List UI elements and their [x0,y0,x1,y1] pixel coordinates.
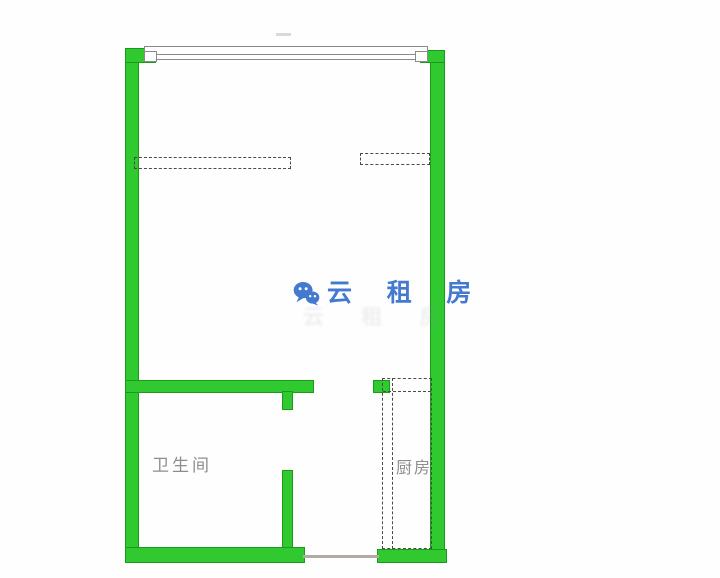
kitchen-label: 厨房 [396,454,432,478]
wall-left [125,49,139,563]
wall-bathroom-right [282,470,293,556]
wall-bottom-left [125,547,305,563]
watermark: 云 租 房 [293,273,484,309]
wall-bottom-right [377,549,447,563]
window-inner-line [145,54,427,55]
window-top [144,46,428,60]
window-cap-right [415,51,428,62]
floor-plan: 卫生间 厨房 云 租 房 云 租 房 [0,0,720,578]
beam-dashed-left [134,157,291,169]
wall-bathroom-door-stub [282,391,293,410]
kitchen-counter-inner-line [392,378,393,549]
watermark-brand-text: 云 租 房 [327,273,484,309]
bathroom-label: 卫生间 [152,451,212,476]
wechat-chat-bubbles-icon [293,281,320,306]
window-cap-left [144,51,157,62]
entrance-threshold-line [303,555,379,558]
beam-dashed-right [360,153,430,165]
kitchen-counter-top-line [383,391,431,392]
scan-artifact-tick [276,33,291,36]
